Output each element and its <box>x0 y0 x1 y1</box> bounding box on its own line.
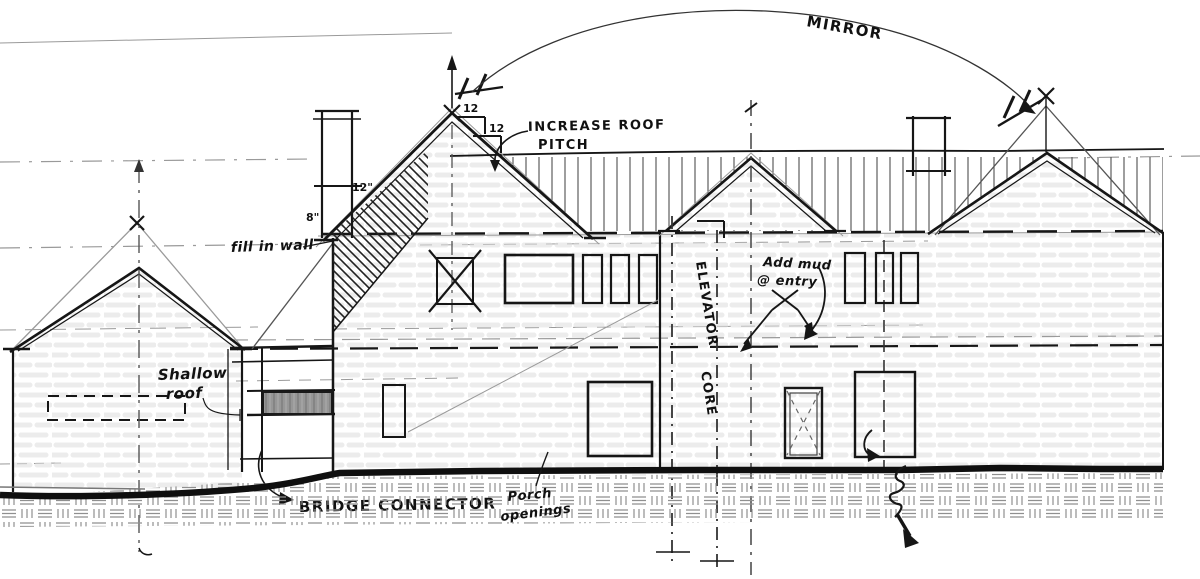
squiggle-arrowhead <box>903 529 919 548</box>
annotation-shallow: Shallow <box>158 364 228 384</box>
elevation-drawing: Shallow roof BRIDGE CONNECTOR <box>0 0 1200 579</box>
connector-band-top <box>247 390 335 391</box>
top-guide-line <box>0 33 452 43</box>
annotation-fill-in-wall: fill in wall <box>231 237 314 256</box>
match-mark-line-right <box>998 100 1042 126</box>
pitch-run-label: 12 <box>489 122 504 135</box>
annotation-mirror: MIRROR <box>805 12 884 43</box>
mirror-annotation: MIRROR <box>472 10 1036 114</box>
sketch-canvas: Shallow roof BRIDGE CONNECTOR <box>0 0 1200 579</box>
main-wall-texture <box>333 232 1163 470</box>
left-centerline-hook <box>139 548 152 555</box>
connector-base-line <box>240 458 333 459</box>
connector-diagonal <box>252 243 333 349</box>
mirror-curve <box>472 10 1031 108</box>
connector-roof-bottom <box>232 360 333 362</box>
annotation-at-entry: @ entry <box>757 273 818 290</box>
annotation-roof: roof <box>166 384 205 403</box>
annotation-increase-roof: INCREASE ROOF <box>528 118 666 135</box>
main-peak-arrow <box>447 55 457 70</box>
match-mark-slashes-left <box>459 74 486 99</box>
elevator-pit-ticks <box>656 552 734 561</box>
connector-window-band <box>263 392 332 414</box>
pitch-rise-label: 12 <box>463 102 478 115</box>
gable-faces <box>323 114 1163 240</box>
annotation-pitch: PITCH <box>538 138 589 153</box>
guide-dash-left-upper <box>0 159 315 162</box>
dim-8in: 8" <box>306 211 319 224</box>
dim-12in: 12" <box>352 181 373 194</box>
